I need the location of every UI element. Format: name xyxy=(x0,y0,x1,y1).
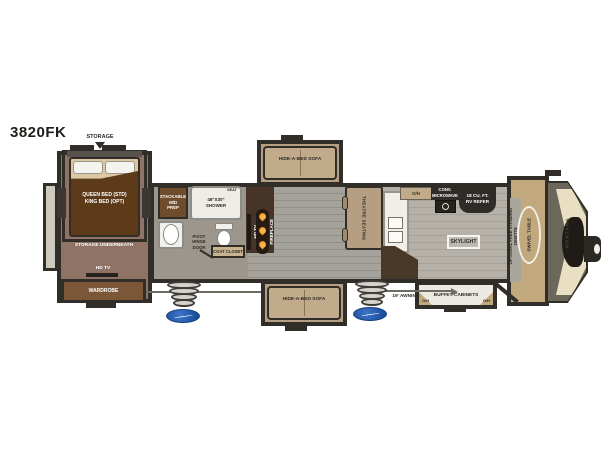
wardrobe-label: WARDROBE xyxy=(64,282,143,300)
washer-dryer-prep-closet: STACKABLE W/D PREP xyxy=(158,186,188,219)
rear-wall-accent xyxy=(43,183,58,271)
bedroom-window xyxy=(57,188,66,218)
brand-logo-text: MONTANA xyxy=(564,203,569,263)
entry-steps-rear xyxy=(166,281,202,307)
pillow xyxy=(73,161,103,174)
kitchen-sink-bowl xyxy=(388,217,403,229)
slide-hatch xyxy=(285,326,307,331)
pillow xyxy=(105,161,135,174)
bathroom-sink xyxy=(163,224,179,245)
sofa-top-label: HIDE-A-BED SOFA xyxy=(263,157,337,162)
overhead-cabinet: O/H xyxy=(400,187,432,200)
awning-line-main xyxy=(383,290,451,292)
buffet-oh-right: O/H xyxy=(483,298,490,303)
bedroom-tv xyxy=(86,273,118,277)
sofa-bottom-label: HIDE-A-BED SOFA xyxy=(267,297,341,302)
theatre-seating: THEATRE SEATING xyxy=(345,186,383,250)
coat-closet: COAT CLOSET xyxy=(211,245,245,258)
floorplan-page: 3820FK OPTIONAL FREE STANDING DINETTE SW… xyxy=(0,0,614,460)
step xyxy=(361,298,383,306)
model-number-label: 3820FK xyxy=(10,124,66,141)
wardrobe-slideout: WARDROBE xyxy=(61,279,146,303)
refrigerator: 18 CU. FT. RV REFER xyxy=(459,185,496,213)
flame-icon xyxy=(258,212,268,222)
fireplace-label: FIREPLACE xyxy=(267,209,275,255)
theatre-armrest xyxy=(342,228,348,242)
theatre-armrest xyxy=(342,196,348,210)
bed-label: QUEEN BED (STD) KING BED (OPT) xyxy=(71,192,138,205)
awning-line-rear xyxy=(146,291,261,293)
sofa-cushion-divider xyxy=(300,150,301,176)
storage-hatch-label: STORAGE xyxy=(72,134,128,140)
swivel-table-label: SWIVEL TABLE xyxy=(526,210,532,260)
skylight: SKYLIGHT xyxy=(447,235,480,249)
under-bed-storage-label: STORAGE UNDERNEATH xyxy=(62,243,146,248)
toilet-tank xyxy=(215,223,233,230)
burner-icon xyxy=(442,203,449,210)
awning-arrow-icon xyxy=(451,288,458,296)
sofa-cushion-divider xyxy=(304,290,305,316)
roof-vent-hatch xyxy=(545,170,561,176)
step xyxy=(173,299,195,307)
slide-hatch xyxy=(444,307,466,312)
flame-icon xyxy=(258,226,268,236)
hitch-pin-slot xyxy=(594,244,600,254)
microwave: CONV. MICROWAVE xyxy=(431,185,459,200)
entry-steps-main xyxy=(354,280,390,306)
logo-swoosh xyxy=(174,315,193,319)
kitchen-sink-bowl xyxy=(388,231,403,243)
step-brand-logo xyxy=(353,307,387,321)
flame-icon xyxy=(258,240,268,250)
logo-swoosh xyxy=(361,313,380,317)
slide-hatch xyxy=(281,135,303,140)
bedroom-window xyxy=(142,188,151,218)
slide-hatch xyxy=(86,303,116,308)
pivot-hinge-door-label: PIVOT HINGE DOOR xyxy=(185,234,213,250)
step-brand-logo xyxy=(166,309,200,323)
bedroom-tv-label: HD TV xyxy=(80,266,126,271)
shower-seat-label: SEAT xyxy=(224,188,240,192)
